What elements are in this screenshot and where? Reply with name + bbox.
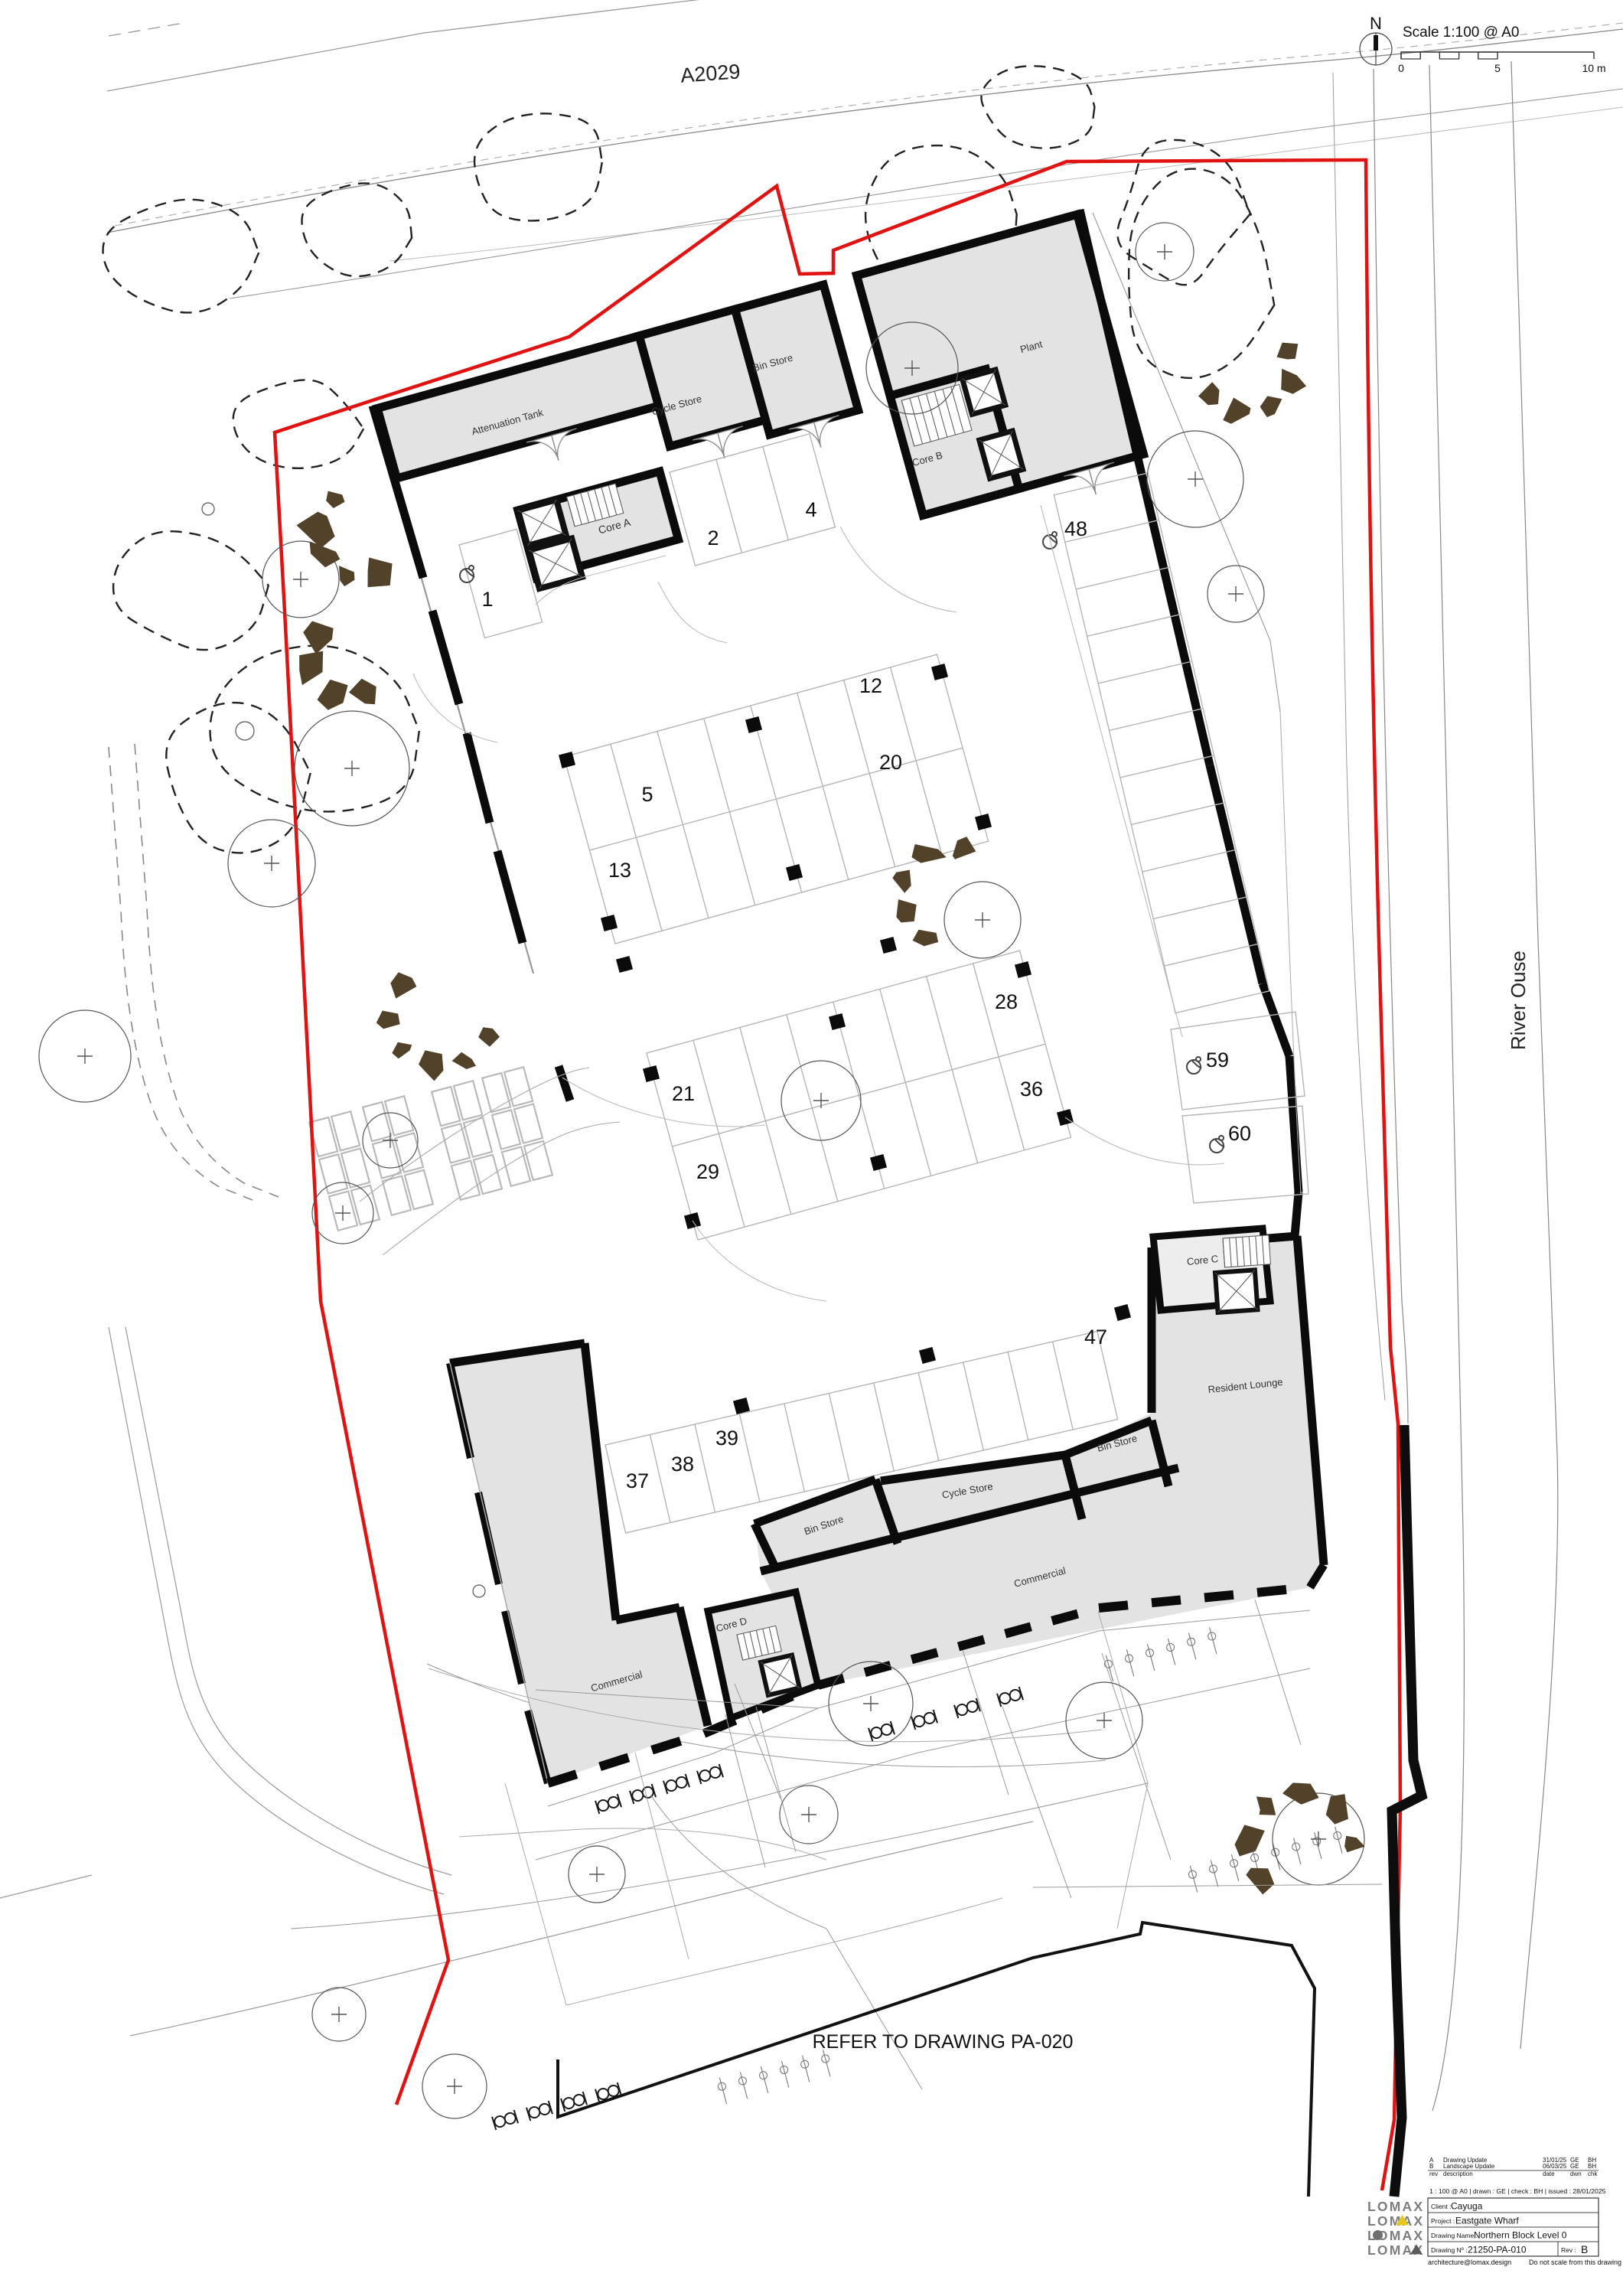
svg-text:37: 37 [626,1469,649,1492]
svg-text:06/03/25: 06/03/25 [1543,2163,1567,2170]
svg-text:B: B [1429,2163,1433,2170]
svg-text:Do not scale from this drawing: Do not scale from this drawing [1529,2258,1621,2266]
svg-text:rev: rev [1429,2170,1438,2177]
svg-text:21250-PA-010: 21250-PA-010 [1468,2245,1527,2255]
svg-text:5: 5 [1494,62,1501,74]
svg-text:Project :: Project : [1431,2217,1455,2225]
svg-text:13: 13 [608,859,631,882]
svg-text:date: date [1543,2170,1555,2177]
svg-text:architecture@lomax.design: architecture@lomax.design [1428,2258,1511,2266]
svg-text:GE: GE [1570,2163,1579,2170]
svg-text:29: 29 [696,1160,719,1183]
svg-text:5: 5 [641,783,653,806]
svg-text:LOMAX: LOMAX [1367,2199,1424,2214]
svg-text:A2029: A2029 [680,60,741,86]
svg-text:39: 39 [715,1427,738,1450]
svg-text:N: N [1370,14,1382,33]
svg-text:1: 1 [481,588,493,611]
svg-text:1 : 100 @ A0 | drawn : GE | ch: 1 : 100 @ A0 | drawn : GE | check : BH |… [1429,2187,1606,2195]
svg-text:38: 38 [671,1453,694,1476]
svg-text:10 m: 10 m [1582,62,1605,74]
svg-text:Scale 1:100 @ A0: Scale 1:100 @ A0 [1403,24,1519,41]
svg-text:36: 36 [1020,1078,1043,1101]
svg-text:B: B [1581,2243,1588,2255]
svg-text:12: 12 [859,674,882,697]
svg-text:0: 0 [1398,62,1404,74]
svg-text:LOMAX: LOMAX [1367,2213,1424,2229]
svg-text:60: 60 [1228,1122,1251,1145]
svg-text:Cayuga: Cayuga [1451,2201,1483,2212]
svg-text:47: 47 [1084,1326,1107,1349]
svg-text:59: 59 [1206,1049,1229,1071]
svg-text:Eastgate Wharf: Eastgate Wharf [1455,2216,1519,2226]
svg-text:2: 2 [707,527,719,550]
svg-text:Drawing Name :: Drawing Name : [1431,2232,1478,2239]
svg-text:28: 28 [995,990,1018,1013]
svg-text:River Ouse: River Ouse [1507,951,1530,1050]
svg-text:20: 20 [879,751,902,774]
svg-text:dwn: dwn [1570,2170,1582,2177]
svg-text:Drawing Nº :: Drawing Nº : [1431,2246,1468,2254]
svg-text:chk: chk [1588,2170,1598,2177]
svg-text:48: 48 [1064,517,1087,540]
svg-text:Client :: Client : [1431,2203,1451,2210]
svg-text:description: description [1443,2170,1473,2177]
svg-text:Landscape Update: Landscape Update [1443,2163,1495,2170]
svg-text:REFER TO DRAWING PA-020: REFER TO DRAWING PA-020 [813,2031,1074,2053]
svg-text:Rev :: Rev : [1561,2246,1576,2254]
svg-text:Northern Block Level 0: Northern Block Level 0 [1474,2230,1567,2241]
svg-text:21: 21 [672,1082,695,1105]
svg-text:4: 4 [805,498,816,521]
svg-text:BH: BH [1588,2163,1596,2170]
